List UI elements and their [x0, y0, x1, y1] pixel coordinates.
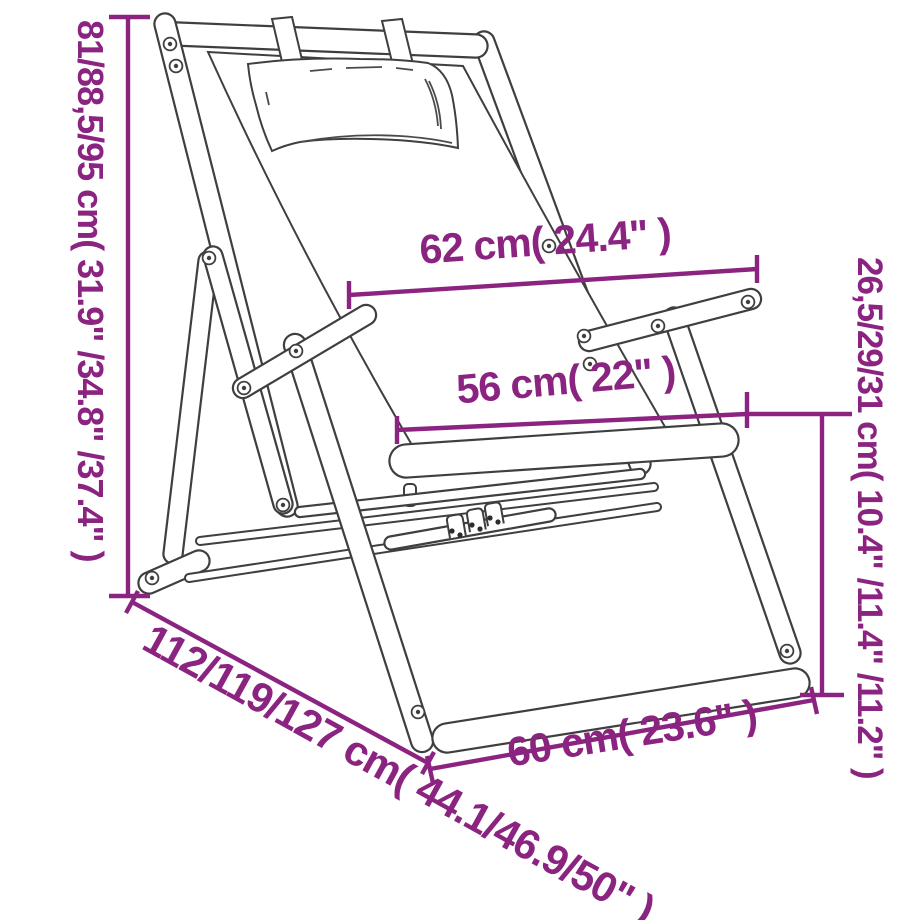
top-bar	[176, 34, 476, 46]
height-dimension-label: 81/88,5/95 cm( 31.9" /34.8" /37.4" )	[70, 20, 111, 562]
screw-icon	[164, 38, 177, 51]
screw-icon	[412, 706, 425, 719]
screw-icon	[238, 382, 251, 395]
seat-height-dimension-label: 26,5/29/31 cm( 10.4" /11.4" /11.2" )	[850, 257, 889, 779]
screw-icon	[652, 320, 665, 333]
screw-icon	[578, 330, 591, 343]
dimension-diagram: 81/88,5/95 cm( 31.9" /34.8" /37.4" ) 62 …	[0, 0, 920, 920]
right-front-leg	[674, 318, 790, 653]
screw-icon	[742, 296, 755, 309]
height-dimension-line	[109, 17, 150, 596]
headrest-pillow	[248, 59, 458, 151]
screw-icon	[203, 252, 216, 265]
screw-icon	[146, 572, 159, 585]
screw-icon	[290, 345, 303, 358]
screw-icon	[277, 499, 290, 512]
seat-front-bar	[406, 440, 722, 461]
screw-icon	[170, 60, 183, 73]
screw-icon	[781, 645, 794, 658]
product-dimension-page: 81/88,5/95 cm( 31.9" /34.8" /37.4" ) 62 …	[0, 0, 920, 920]
rear-left-leg	[173, 261, 208, 554]
